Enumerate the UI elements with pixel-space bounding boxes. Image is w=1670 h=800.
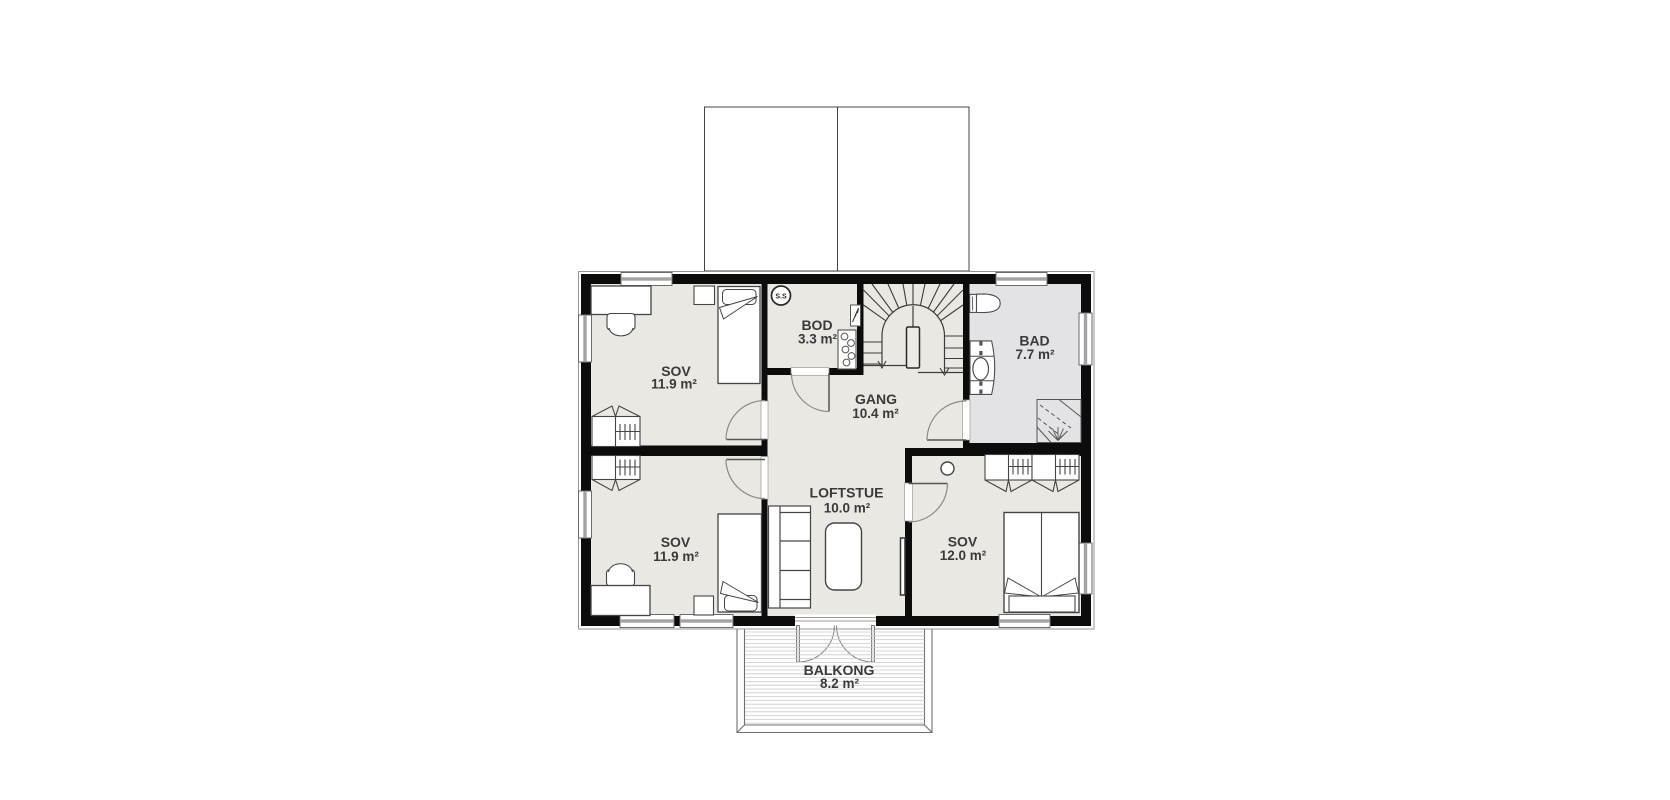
svg-text:S.S: S.S — [775, 294, 787, 301]
svg-text:LOFTSTUE: LOFTSTUE — [810, 485, 884, 501]
svg-text:10.0 m²: 10.0 m² — [824, 501, 871, 516]
svg-text:7.7 m²: 7.7 m² — [1015, 347, 1055, 362]
svg-text:GANG: GANG — [855, 391, 897, 407]
svg-text:3.3 m²: 3.3 m² — [798, 332, 838, 347]
svg-text:8.2 m²: 8.2 m² — [820, 676, 860, 691]
svg-text:SOV: SOV — [661, 534, 691, 550]
svg-text:11.9 m²: 11.9 m² — [651, 377, 697, 392]
svg-text:10.4 m²: 10.4 m² — [852, 406, 899, 421]
svg-text:12.0 m²: 12.0 m² — [940, 548, 987, 563]
svg-text:11.9 m²: 11.9 m² — [653, 549, 699, 564]
